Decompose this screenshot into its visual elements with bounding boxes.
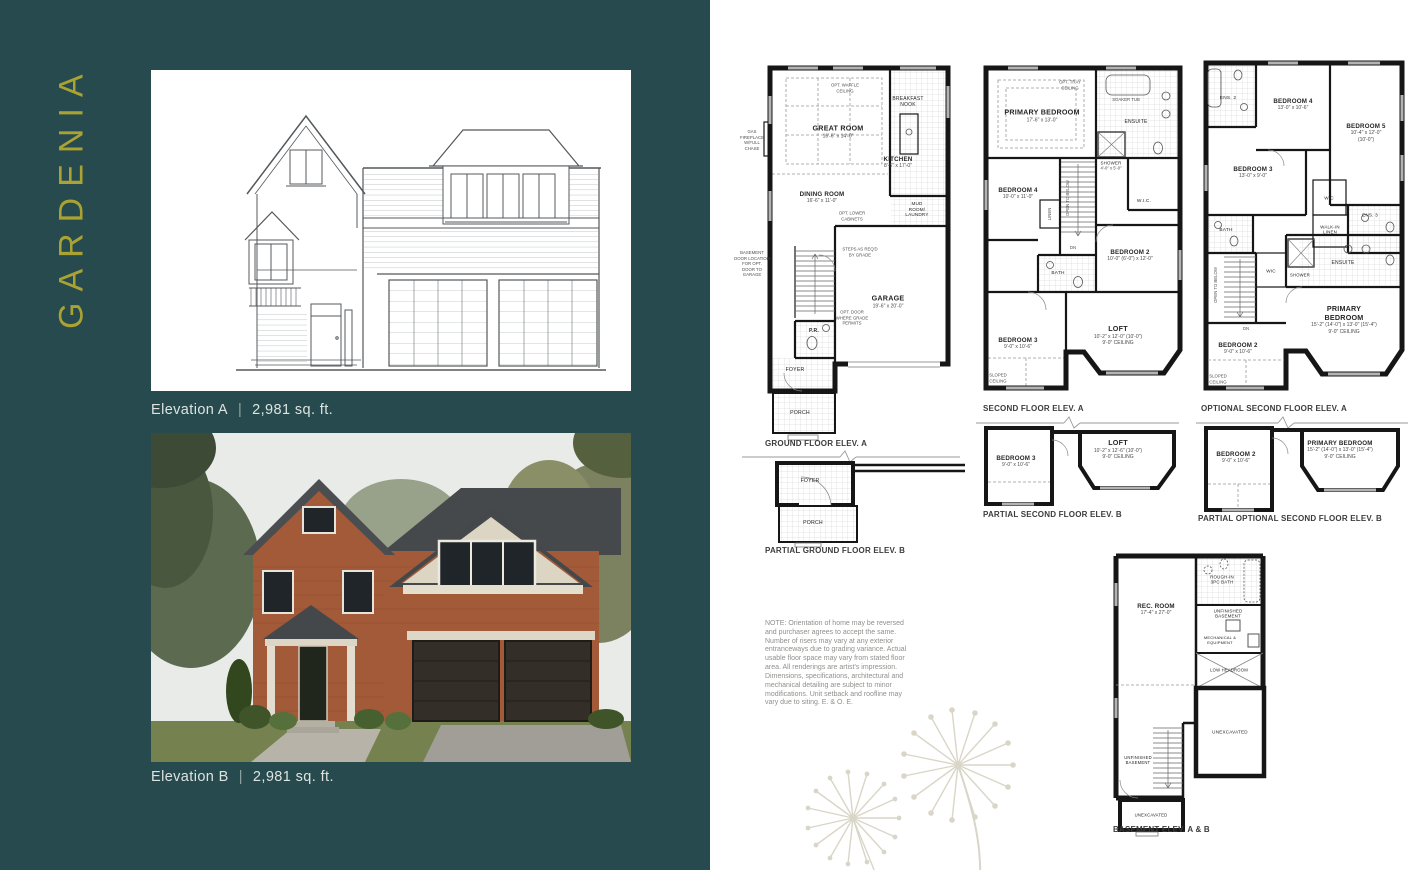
- label-linen: LINEN: [1047, 208, 1053, 221]
- room-label-unexcavated: UNEXCAVATED: [1212, 729, 1248, 735]
- elevation-b-render-art: [151, 433, 631, 762]
- model-name-vertical: GARDENIA: [48, 70, 96, 322]
- plan-second-floor-a: PRIMARY BEDROOM17'-6" x 13'-0" OPT. TRAY…: [978, 60, 1188, 416]
- room-label-mud-room: MUD ROOM/ LAUNDRY: [905, 201, 928, 218]
- annotation-sloped-ceiling: SLOPED CEILING: [989, 372, 1006, 383]
- room-label-ensuite: ENSUITE: [1331, 260, 1354, 266]
- room-label-wic2: WIC: [1266, 268, 1276, 274]
- room-label-loft: LOFT10'-2" x 12'-6" (10'-0")9'-0" CEILIN…: [1094, 439, 1142, 461]
- caption-separator: |: [238, 402, 242, 418]
- elevation-a-sqft: 2,981 sq. ft.: [252, 402, 333, 418]
- room-label-wic: WIC: [1324, 195, 1334, 201]
- annotation-lower-cabinets: OPT. LOWER CABINETS: [839, 210, 866, 221]
- annotation-basement-door: BASEMENT DOOR LOCATION FOR OPT. DOOR TO …: [734, 250, 770, 278]
- annotation-waffle-ceiling: OPT. WAFFLE CEILING: [831, 82, 859, 93]
- room-label-walkin-linen: WALK-IN LINEN: [1320, 225, 1340, 236]
- label-soaker-tub: SOAKER TUB: [1112, 97, 1140, 103]
- elevation-a-label: Elevation A: [151, 402, 228, 418]
- room-label-roughin-bath: ROUGH-IN 3PC BATH: [1210, 575, 1234, 586]
- caption-elevation-a: Elevation A | 2,981 sq. ft.: [151, 402, 333, 418]
- annotation-dn: DN: [1070, 245, 1076, 251]
- room-label-wic: W.I.C.: [1137, 199, 1151, 205]
- room-label-bedroom4: BEDROOM 410'-0" x 11'-0": [998, 187, 1037, 201]
- elevation-b-label: Elevation B: [151, 769, 229, 785]
- room-label-bedroom4: BEDROOM 413'-0" x 10'-6": [1273, 98, 1312, 112]
- room-label-bedroom3: BEDROOM 39'-0" x 10'-6": [998, 337, 1037, 351]
- plan-caption-basement: BASEMENT ELEV. A & B: [1113, 825, 1210, 834]
- room-label-kitchen: KITCHEN8'-6" x 17'-0": [884, 156, 913, 170]
- caption-elevation-b: Elevation B | 2,981 sq. ft.: [151, 769, 334, 785]
- room-label-foyer: FOYER: [786, 367, 805, 373]
- annotation-mechanical: MECHANICAL & EQUIPMENT: [1204, 636, 1236, 646]
- plan-basement: REC. ROOM17'-4" x 27'-0" ROUGH-IN 3PC BA…: [1108, 548, 1270, 840]
- room-label-unexcavated2: UNEXCAVATED: [1135, 812, 1168, 817]
- room-label-shower: SHOWER4'-0" x 5'-0": [1100, 161, 1121, 172]
- elevation-b-sqft: 2,981 sq. ft.: [253, 769, 334, 785]
- room-label-foyer: FOYER: [801, 478, 820, 484]
- room-label-rec-room: REC. ROOM17'-4" x 27'-0": [1137, 603, 1175, 617]
- dandelion-decoration: [770, 660, 1100, 870]
- room-label-great-room: GREAT ROOM16'-6" x 14'-0": [813, 124, 864, 139]
- room-label-bedroom2: BEDROOM 210'-0" (6'-0") x 12'-0": [1107, 249, 1152, 263]
- annotation-dn: DN: [1243, 326, 1249, 332]
- brochure-page: GARDENIA: [0, 0, 1425, 870]
- room-label-garage: GARAGE19'-6" x 20'-0": [872, 294, 905, 309]
- room-label-porch: PORCH: [790, 410, 810, 416]
- plan-caption-optional-second-a: OPTIONAL SECOND FLOOR ELEV. A: [1201, 404, 1347, 413]
- plan-ground-floor-a: GREAT ROOM16'-6" x 14'-0" DINING ROOM16'…: [740, 56, 965, 456]
- plan-caption-partial-optional-b: PARTIAL OPTIONAL SECOND FLOOR ELEV. B: [1198, 514, 1382, 523]
- elevation-a-drawing: [151, 70, 631, 391]
- room-label-low-headroom: LOW HEADROOM: [1210, 667, 1248, 672]
- room-label-loft: LOFT10'-2" x 12'-0" (10'-0")9'-0" CEILIN…: [1094, 325, 1142, 347]
- room-label-ens2: ENS. 2: [1220, 96, 1236, 102]
- room-label-ens3: ENS. 3: [1362, 212, 1378, 218]
- room-label-primary-bedroom: PRIMARY BEDROOM15'-2" (14'-0") x 13'-0" …: [1307, 440, 1373, 460]
- elevation-a-line-art: [151, 70, 631, 391]
- elevation-b-photo: [151, 433, 631, 762]
- caption-separator: |: [239, 769, 243, 785]
- plan-partial-optional-b: BEDROOM 29'-0" x 10'-6" PRIMARY BEDROOM1…: [1198, 422, 1412, 522]
- room-label-powder-room: P.R.: [809, 328, 819, 334]
- annotation-open-to-below: OPEN TO BELOW: [1213, 267, 1219, 303]
- plan-caption-second-a: SECOND FLOOR ELEV. A: [983, 404, 1084, 413]
- room-label-shower: SHOWER: [1290, 272, 1310, 277]
- room-label-bath: BATH: [1051, 271, 1064, 277]
- room-label-dining-room: DINING ROOM16'-6" x 11'-0": [800, 191, 845, 205]
- annotation-sloped-ceiling: SLOPED CEILING: [1209, 373, 1226, 384]
- annotation-opt-door: OPT. DOOR WHERE GRADE PERMITS: [836, 310, 868, 327]
- plan-caption-partial-ground-b: PARTIAL GROUND FLOOR ELEV. B: [765, 546, 905, 555]
- annotation-steps-grade: STEPS AS REQ'D BY GRADE: [842, 246, 877, 257]
- plan-optional-second-a: ENS. 2 BEDROOM 413'-0" x 10'-6" BEDROOM …: [1198, 55, 1410, 415]
- annotation-open-to-below: OPEN TO BELOW: [1065, 180, 1071, 216]
- room-label-breakfast-nook: BREAKFAST NOOK: [892, 96, 923, 108]
- plan-partial-ground-b: FOYER PORCH PARTIAL GROUND FLOOR ELEV. B: [765, 455, 970, 557]
- annotation-tray-ceiling: OPT. TRAY CEILING: [1059, 79, 1081, 90]
- room-label-bedroom5: BEDROOM 510'-4" x 12'-0" (10'-0"): [1344, 123, 1388, 143]
- room-label-bedroom2: BEDROOM 29'-0" x 10'-6": [1218, 342, 1257, 356]
- room-label-bedroom2: BEDROOM 29'-0" x 10'-6": [1216, 451, 1255, 465]
- plan-partial-second-b: BEDROOM 39'-0" x 10'-6" LOFT10'-2" x 12'…: [978, 422, 1183, 520]
- plan-caption-partial-second-b: PARTIAL SECOND FLOOR ELEV. B: [983, 510, 1122, 519]
- room-label-bedroom3: BEDROOM 313'-0" x 9'-0": [1233, 166, 1272, 180]
- annotation-gas-fireplace: GAS FIREPLACE W/FULL CHASE: [740, 129, 764, 151]
- left-panel: GARDENIA: [0, 0, 710, 870]
- room-label-unfinished-basement2: UNFINISHED BASEMENT: [1124, 755, 1152, 765]
- plan-caption-ground-a: GROUND FLOOR ELEV. A: [765, 439, 867, 448]
- room-label-primary-bedroom: PRIMARY BEDROOM15'-2" (14'-0") x 13'-0" …: [1311, 305, 1377, 335]
- room-label-porch: PORCH: [803, 520, 823, 526]
- room-label-primary-bedroom: PRIMARY BEDROOM17'-6" x 13'-0": [1004, 108, 1079, 123]
- room-label-unfinished-basement: UNFINISHED BASEMENT: [1214, 609, 1243, 620]
- room-label-bedroom3: BEDROOM 39'-0" x 10'-6": [996, 455, 1035, 469]
- room-label-bath: BATH: [1219, 228, 1232, 234]
- room-label-ensuite: ENSUITE: [1124, 119, 1147, 125]
